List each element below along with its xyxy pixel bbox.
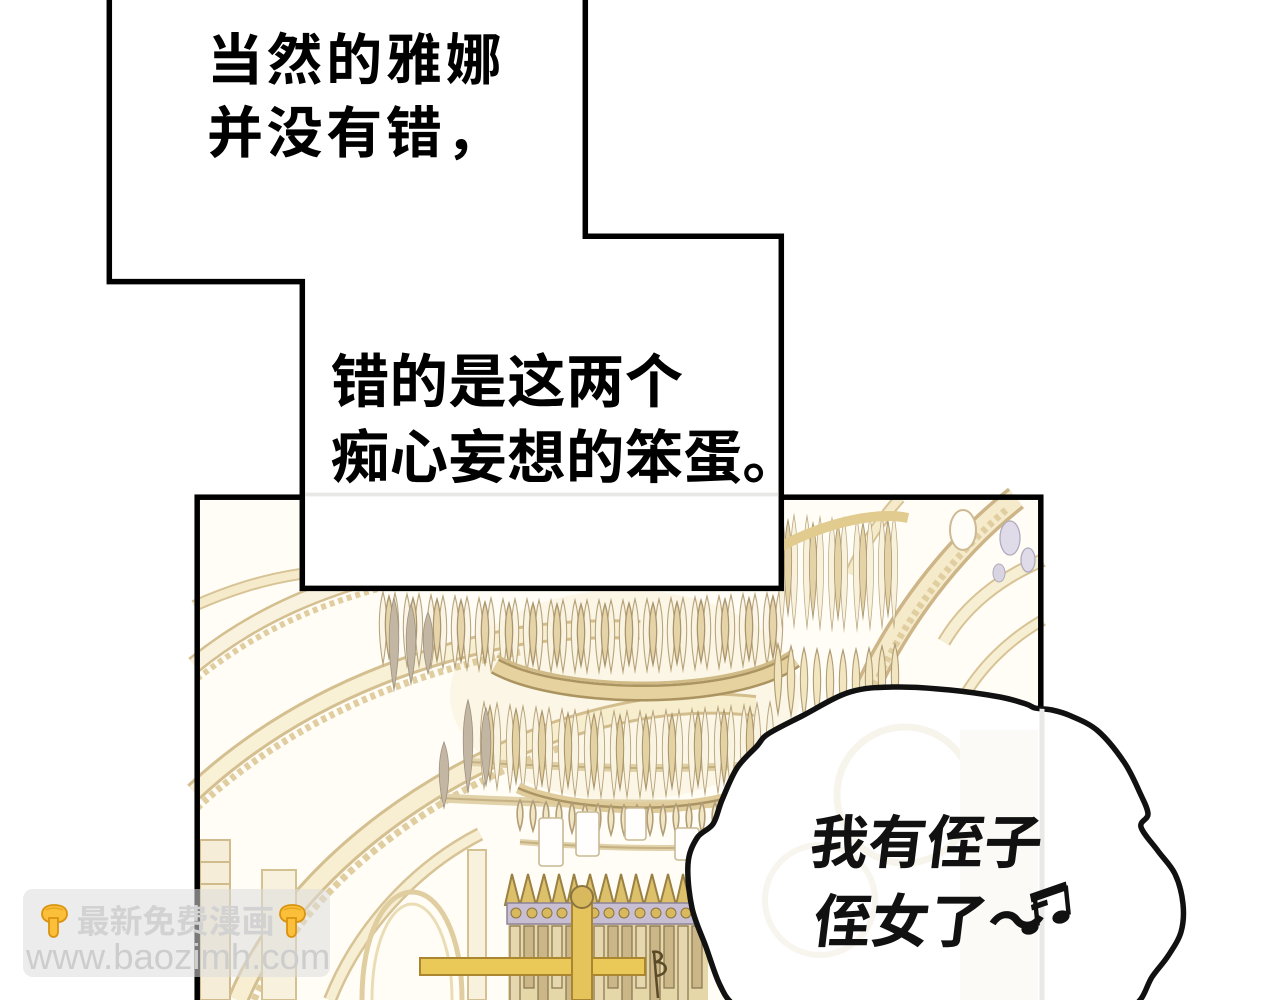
svg-text:www.baozimh.com: www.baozimh.com bbox=[25, 936, 330, 977]
